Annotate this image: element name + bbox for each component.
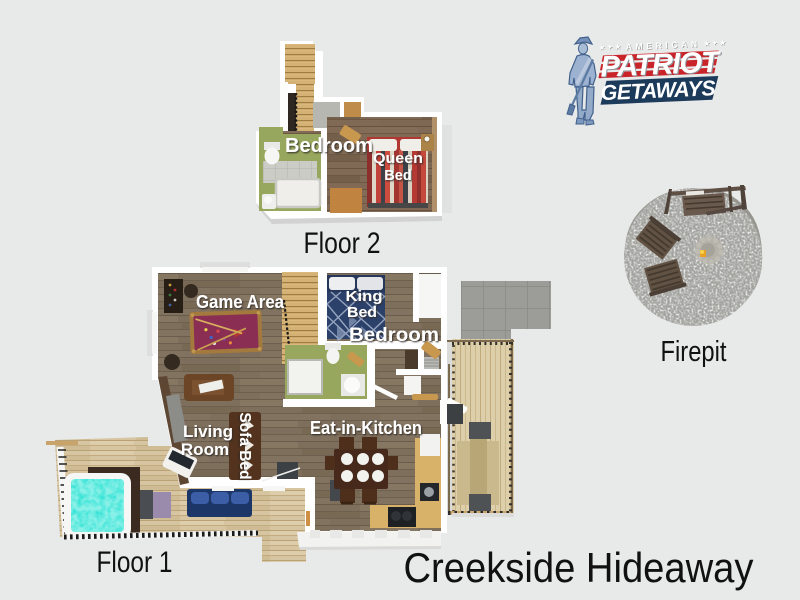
svg-text:Living: Living bbox=[183, 422, 233, 441]
svg-text:Bed: Bed bbox=[347, 304, 377, 321]
svg-text:King: King bbox=[346, 288, 383, 305]
svg-text:Creekside Hideaway: Creekside Hideaway bbox=[404, 544, 754, 591]
svg-text:Room: Room bbox=[181, 440, 229, 459]
svg-text:Bedroom: Bedroom bbox=[349, 324, 439, 346]
svg-text:Firepit: Firepit bbox=[661, 336, 727, 368]
svg-text:Sofa Bed: Sofa Bed bbox=[236, 412, 253, 479]
svg-text:Game Area: Game Area bbox=[196, 292, 285, 312]
svg-text:Eat-in-Kitchen: Eat-in-Kitchen bbox=[310, 418, 422, 438]
svg-text:GETAWAYS: GETAWAYS bbox=[600, 76, 717, 105]
svg-text:Bedroom: Bedroom bbox=[285, 135, 373, 157]
svg-text:Floor 2: Floor 2 bbox=[304, 227, 381, 260]
svg-text:Queen: Queen bbox=[373, 151, 423, 167]
svg-text:Floor 1: Floor 1 bbox=[97, 546, 173, 579]
svg-text:Bed: Bed bbox=[384, 168, 411, 184]
